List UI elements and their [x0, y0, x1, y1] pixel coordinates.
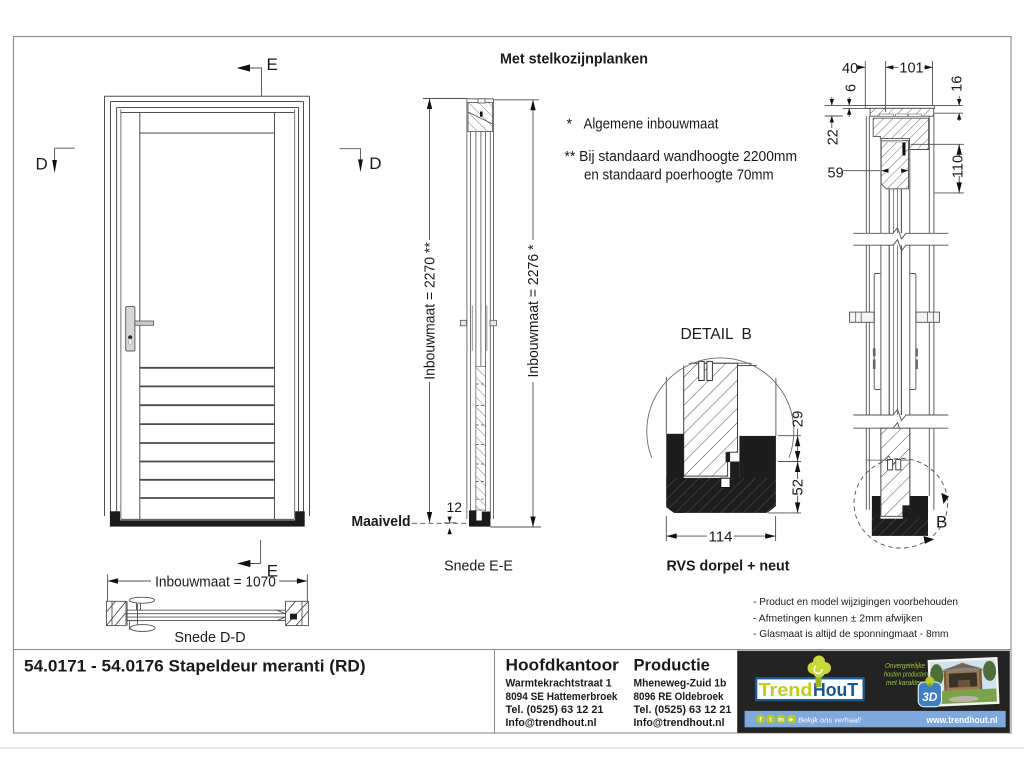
svg-text:en standaard poerhoogte 70mm: en standaard poerhoogte 70mm [584, 168, 774, 184]
svg-text:52: 52 [790, 479, 807, 496]
svg-text:- Afmetingen kunnen ± 2mm afwi: - Afmetingen kunnen ± 2mm afwijken [753, 613, 923, 625]
svg-text:Inbouwmaat = 2276 *: Inbouwmaat = 2276 * [525, 244, 542, 377]
svg-text:E: E [267, 55, 278, 74]
svg-text:Snede D-D: Snede D-D [174, 629, 245, 646]
svg-text:Hoofdkantoor: Hoofdkantoor [506, 656, 620, 675]
svg-text:B: B [742, 326, 752, 343]
svg-text:40: 40 [842, 61, 858, 77]
svg-text:Onvergetelijke: Onvergetelijke [885, 663, 925, 670]
svg-text:Tel. (0525) 63 12 21: Tel. (0525) 63 12 21 [506, 704, 604, 716]
svg-text:DETAIL: DETAIL [681, 326, 734, 343]
svg-text:12: 12 [447, 499, 463, 515]
svg-text:101: 101 [899, 61, 923, 77]
svg-text:D: D [36, 155, 48, 174]
svg-text:22: 22 [826, 129, 842, 145]
svg-text:RVS dorpel + neut: RVS dorpel + neut [667, 559, 790, 575]
svg-text:Info@trendhout.nl: Info@trendhout.nl [634, 717, 725, 729]
svg-text:D: D [369, 154, 381, 173]
svg-text:29: 29 [790, 411, 807, 428]
svg-text:met karakter: met karakter [886, 680, 923, 687]
svg-text:114: 114 [709, 529, 733, 546]
svg-text:Inbouwmaat = 2270 **: Inbouwmaat = 2270 ** [422, 242, 439, 380]
svg-text:Inbouwmaat = 1070: Inbouwmaat = 1070 [155, 574, 276, 590]
svg-text:Maaiveld: Maaiveld [352, 513, 411, 530]
svg-text:59: 59 [828, 166, 844, 182]
svg-text:Warmtekrachtstraat 1: Warmtekrachtstraat 1 [506, 678, 612, 690]
svg-text:B: B [936, 513, 947, 532]
svg-text:Bekijk ons verhaal!: Bekijk ons verhaal! [798, 716, 862, 725]
svg-text:Algemene inbouwmaat: Algemene inbouwmaat [584, 117, 719, 133]
svg-text:- Glasmaat is altijd de sponni: - Glasmaat is altijd de sponningmaat - 8… [753, 628, 949, 640]
svg-text:Tel. (0525) 63 12 21: Tel. (0525) 63 12 21 [634, 704, 732, 716]
svg-text:54.0171 - 54.0176 Stapeldeur m: 54.0171 - 54.0176 Stapeldeur meranti (RD… [24, 657, 366, 676]
svg-text:6: 6 [844, 84, 860, 92]
svg-text:www.trendhout.nl: www.trendhout.nl [926, 715, 998, 725]
svg-text:16: 16 [950, 76, 966, 92]
svg-text:in: in [778, 717, 784, 724]
svg-text:Mheneweg-Zuid 1b: Mheneweg-Zuid 1b [634, 678, 727, 690]
svg-text:Trend: Trend [759, 680, 813, 700]
svg-text:- Product en model wijzigingen: - Product en model wijzigingen voorbehou… [753, 596, 958, 608]
svg-text:Info@trendhout.nl: Info@trendhout.nl [506, 717, 597, 729]
svg-text:Met stelkozijnplanken: Met stelkozijnplanken [500, 52, 648, 68]
svg-text:Snede E-E: Snede E-E [444, 558, 513, 575]
svg-text:Productie: Productie [634, 657, 710, 675]
svg-text:** Bij standaard wandhoogte 22: ** Bij standaard wandhoogte 2200mm [565, 149, 798, 165]
svg-text:110: 110 [951, 155, 967, 178]
svg-text:*: * [567, 117, 573, 133]
svg-text:8096 RE Oldebroek: 8096 RE Oldebroek [634, 691, 725, 703]
svg-text:8094 SE Hattemerbroek: 8094 SE Hattemerbroek [506, 691, 619, 703]
svg-text:houten producten: houten producten [884, 672, 928, 679]
svg-text:3D: 3D [922, 690, 938, 704]
svg-text:►: ► [788, 717, 794, 724]
